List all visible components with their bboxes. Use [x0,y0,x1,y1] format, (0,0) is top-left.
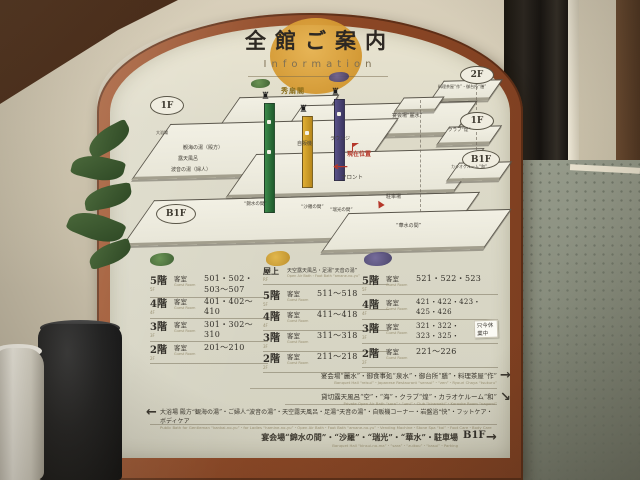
planter-pot [38,324,122,480]
room-type-en: Guest Room [174,283,204,287]
room-type-en: Guest Room [174,306,204,310]
floor-label-en: 5F [362,287,386,292]
room-type-en: Guest Room [386,283,416,287]
floor-label-en: 2F [362,360,386,365]
room-type-en: Guest Room [174,329,204,333]
floor-label-en: 4F [150,310,174,315]
map-label-lounge: ラウンジ [330,137,350,142]
floor-oval-2f-right: 2F [460,66,494,84]
room-type-en: Guest Room [174,352,204,356]
floor-label: 2階 [150,341,174,356]
map-label-sara: “沙羅の間” [301,206,324,211]
left-arrow-icon: ← [146,405,157,420]
room-type: 客室 [287,309,317,319]
room-table-row: 2階2F 客室Guest Room 221〜226 [362,345,498,368]
floor-label: 5階 [362,272,386,287]
right-arrow-icon: → [486,430,497,445]
room-table-row: 3階3F 客室Guest Room 301・302〜310 [150,318,268,342]
board-title: 全館ご案内 [0,30,640,52]
floor-label-en: 4F [362,311,386,316]
elevator-icon: ♜ [299,104,308,115]
room-type-en: Guest Room [287,298,317,302]
room-numbers: 521・522・523 [416,272,481,284]
floor-label: 4階 [150,295,174,310]
room-type-en: Guest Room [386,356,416,360]
floor-label: 屋上 [263,266,287,277]
room-type-en: Guest Room [386,307,416,311]
facility-row-1: 宴会場“麗水”・御食事処“泉水”・御台所“膳”・料理茶屋“作” Banquet … [321,370,497,386]
map-label-vending: 自販機 [297,142,312,147]
subtitle-rule [248,76,388,77]
room-table-row: 5階5F 客室Guest Room 521・522・523 [362,272,498,295]
floor-label: 3階 [263,329,287,344]
floor-label: 4階 [263,308,287,323]
map-label-parking: 駐車場 [386,195,401,200]
floor-label: 4階 [362,296,386,311]
room-numbers: 301・302〜310 [204,318,268,339]
room-type: 客室 [386,321,416,331]
current-location-flag-icon [353,143,359,147]
room-numbers: 321・322・323・325・ [416,320,474,341]
facility-jp: 大浴場 殿方“観海の湯”・ご婦人“波音の湯”・天空露天風呂・足湯“天音の湯”・自… [160,407,498,425]
elevator-icon: ♜ [331,87,340,98]
floor-slab-kasui [321,209,512,253]
facility-row-4: 宴会場“錦水の間”・“沙羅”・“瑞光”・“華水”・駐車場 Banquet Hal… [261,432,458,449]
room-numbers: 211〜218 [317,350,358,362]
room-type: 客室 [386,346,416,356]
door-frame [568,0,579,169]
room-numbers: 401・402〜410 [204,295,268,316]
room-numbers: 221〜226 [416,345,457,357]
room-table-row: 2階2F 客室Guest Room 201〜210 [150,341,268,364]
room-type-en: Guest Room [287,319,317,323]
facility-jp: 貸切露天風呂“空”・“海”・クラブ“煌”・カラオケルーム“和” [321,391,497,401]
room-type: 客室 [287,351,317,361]
map-label-chaya-zen: 料理茶屋“作”・御台所“膳” [438,85,486,89]
divider [150,424,497,425]
floor-label-en: 4F [263,323,287,328]
room-type: 客室 [174,296,204,306]
building-label-shusenkaku: 秀扇閣 [281,88,305,95]
elevator-tower-gold [302,116,313,188]
room-numbers: 201〜210 [204,341,245,353]
room-table-row: 3階3F 客室Guest Room 321・322・323・325・ 只今休業中 [362,320,498,344]
divider [285,404,497,405]
room-type: 客室 [174,273,204,283]
floor-label-en: 3F [263,344,287,349]
map-label-karaoke: カラオケルーム“和” [451,165,487,169]
b1f-label: B1F [463,431,486,442]
room-numbers: 311〜318 [317,329,358,341]
floor-oval-b1f-left: B1F [156,204,196,224]
room-numbers: 421・422・423・425・426 [416,296,498,317]
right-arrow-icon: → [500,368,511,383]
elevator-tower-green [264,103,275,213]
down-right-arrow-icon: ↘ [500,390,511,405]
room-type-en: Guest Room [287,361,317,365]
map-label-ladies-bath: 波音の湯（婦人） [171,168,211,173]
map-label-public-bath: 大浴場 [156,131,168,135]
facility-row-3: 大浴場 殿方“観海の湯”・ご婦人“波音の湯”・天空露天風呂・足湯“天音の湯”・自… [160,407,498,431]
map-label-zuiko: “瑞光の間” [330,209,353,214]
white-urn [0,348,44,480]
floor-label: 2階 [263,350,287,365]
floor-label-en: 2F [150,356,174,361]
facility-en: Banquet Hall “kinsui-no-ma”・“sara”・“zuik… [261,443,458,449]
room-type: 客室 [174,319,204,329]
map-label-banquet-reisui: 宴会場“麗水” [392,114,422,119]
room-numbers: 511〜518 [317,287,358,299]
map-label-open-air-bath: 露天風呂 [178,157,198,162]
divider [250,388,497,389]
room-table-row: 4階4F 客室Guest Room 421・422・423・425・426 [362,296,498,320]
floor-label-en: 5F [263,302,287,307]
map-label-kinsui: “錦水の間” [244,203,267,208]
facility-en: Banquet Hall “reisui”・Japanese Restauran… [321,380,497,386]
map-label-mens-bath: 観海の湯（殿方） [183,146,223,151]
room-table-row: 4階4F 客室Guest Room 401・402〜410 [150,295,268,319]
room-type: 客室 [386,297,416,307]
floor-label: 3階 [362,320,386,335]
room-type: 客室 [386,273,416,283]
closed-notice-sticker: 只今休業中 [473,320,498,339]
map-label-club: クラブ“煌” [448,129,471,134]
current-location-label: 現在位置 [347,152,371,158]
floor-label-en: 5F [150,287,174,292]
floor-label: 2階 [362,345,386,360]
room-numbers: 501・502・503〜507 [204,272,268,295]
elevator-icon: ♜ [261,91,270,102]
floor-label: 3階 [150,318,174,333]
floor-label-en: 2F [263,365,287,370]
floor-label-en: 3F [150,333,174,338]
room-type: 客室 [287,330,317,340]
facility-jp: 宴会場“錦水の間”・“沙羅”・“瑞光”・“華水”・駐車場 [261,432,458,443]
room-numbers: 411〜418 [317,308,358,320]
lobby-photo: 全館ご案内 Information ♜ ♜ ♜ 秀扇閣 1F B1F 2F 1F… [0,0,640,480]
facility-jp: 宴会場“麗水”・御食事処“泉水”・御台所“膳”・料理茶屋“作” [321,370,497,380]
room-type-en: Guest Room [386,331,416,335]
map-label-kasui: “華水の間” [396,224,421,229]
floor-label-en: RF [263,277,287,282]
room-type: 客室 [287,288,317,298]
facility-en: Public Bath for Gentleman “kankai-no-yu”… [160,425,498,431]
room-type-en: Guest Room [287,340,317,344]
room-type: 客室 [174,342,204,352]
floor-label-en: 3F [362,335,386,340]
board-subtitle: Information [0,60,640,71]
current-location-arrow-icon: ← [333,161,349,173]
floor-label: 5階 [150,272,174,287]
floor-label: 5階 [263,287,287,302]
floor-oval-1f-left: 1F [150,96,184,115]
map-label-front-desk: フロント [341,176,363,182]
